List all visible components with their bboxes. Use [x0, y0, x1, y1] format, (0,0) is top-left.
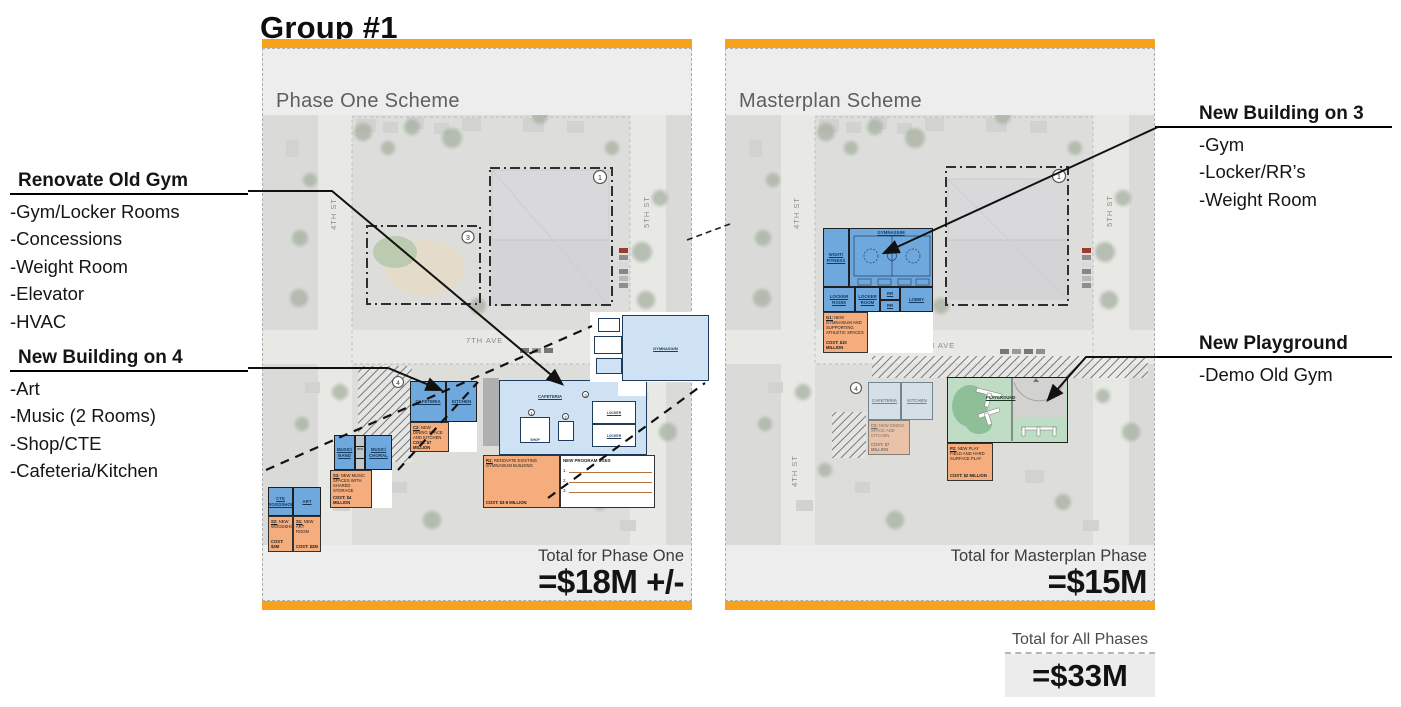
annotation-item: -Weight Room	[10, 253, 248, 280]
note-s2-cost: COST: $2M	[271, 539, 290, 549]
annotation-heading: New Playground	[1155, 333, 1392, 358]
note-r1-text: R1: RENOVATE EXISTING GYMNASIUM BUILDING	[486, 458, 557, 468]
street-label-5th: 5TH ST	[1105, 195, 1114, 227]
phase-one-scheme-label: Phase One Scheme	[276, 90, 460, 113]
playground-label: PLAYGROUND	[986, 395, 1015, 400]
block-cafeteria-faded: CAFETERIA	[868, 382, 901, 420]
annotation-item: -Shop/CTE	[10, 430, 248, 457]
annotation-item: -HVAC	[10, 308, 248, 335]
masterplan-scheme-label: Masterplan Scheme	[739, 90, 922, 113]
note-s3-cost: COST: $4 MILLION	[333, 495, 369, 505]
annotation-heading: New Building on 3	[1155, 103, 1392, 128]
note-s1-text: S1: NEW ART ROOM	[296, 519, 318, 534]
r1-cafeteria-label: CAFETERIA	[538, 394, 562, 399]
note-s2-text: S2: NEW WOODSHOP	[271, 519, 290, 529]
note-p2-text: P2: NEW PLAY FIELD AND HARD SURFACE PLAY	[950, 446, 990, 461]
r1-locker-room-2: LOCKER	[592, 424, 636, 447]
annotation-heading: New Building on 4	[10, 347, 248, 372]
gym-popup-label: GYMNASIUM	[653, 346, 678, 351]
annotation-item: -Demo Old Gym	[1199, 361, 1392, 388]
block-kitchen: KITCHEN	[446, 381, 477, 422]
r1-locker-room-1: LOCKER	[592, 401, 636, 424]
note-p2-cost: COST: $2 MILLION	[950, 473, 990, 478]
r1-floor-plan: CAFETERIA SHOP LOCKER LOCKER 1 2 3	[483, 378, 645, 455]
r1-small-room	[558, 421, 574, 441]
gym-popup-main-room: GYMNASIUM	[622, 315, 709, 381]
gym-popup-room-a	[598, 318, 620, 332]
site-3-marker: 3	[466, 235, 470, 242]
note-c2: C2: NEW DINING SPACE AND KITCHEN COST: $…	[410, 422, 449, 452]
site-1-marker: 1	[598, 173, 602, 182]
r1-wall-band	[483, 378, 499, 446]
panel-connector-dashes	[687, 224, 730, 240]
note-s3: S3: NEW MUSIC SPACES WITH SHARED STORAGE…	[330, 470, 372, 508]
playground-plan: PLAYGROUND	[947, 377, 1068, 443]
site-1-marker: 1	[1057, 172, 1061, 181]
phase-one-bottom-bar	[262, 601, 692, 610]
construction-hatch-strip	[872, 356, 1148, 378]
block-music-band: MUSIC/ BAND	[334, 435, 355, 470]
note-r1: R1: RENOVATE EXISTING GYMNASIUM BUILDING…	[483, 455, 560, 508]
gym-popup-plan: GYMNASIUM	[590, 312, 710, 382]
annotation-item: -Art	[10, 375, 248, 402]
note-g1-text: G1: NEW GYMNASIUM AND SUPPORTING ATHLETI…	[826, 315, 865, 335]
note-r1-cost: COST: $3-8 MILLION	[486, 500, 557, 505]
annotation-new-building-on-4: New Building on 4 -Art -Music (2 Rooms) …	[10, 347, 248, 485]
block-locker-room-1: LOCKER ROOM	[823, 287, 855, 312]
block-weight-fitness: WGHT/ FITNESS	[823, 228, 849, 287]
annotation-item: -Cafeteria/Kitchen	[10, 457, 248, 484]
masterplan-bottom-bar	[725, 601, 1155, 610]
use-line-3: 3.	[563, 488, 567, 493]
block-art: ART	[293, 487, 321, 516]
block-cte-woodshop: CTE WOODSHOP	[268, 487, 293, 516]
street-label-5th: 5TH ST	[642, 196, 651, 228]
masterplan-total-value: =$15M	[843, 563, 1147, 601]
block-gymnasium: GYMNASIUM	[849, 228, 933, 287]
r1-marker-1: 1	[528, 409, 535, 416]
use-line-2: 2.	[563, 478, 567, 483]
r1-plan-body: CAFETERIA SHOP LOCKER LOCKER 1 2 3	[499, 380, 647, 455]
masterplan-aerial-map: 1 4 4TH ST 4TH ST 5TH ST 7TH AVE	[726, 115, 1154, 545]
note-c2-paper	[449, 422, 477, 452]
annotation-item: -Gym	[1199, 131, 1392, 158]
note-s2: S2: NEW WOODSHOP COST: $2M	[268, 516, 293, 552]
annotation-item: -Weight Room	[1199, 186, 1392, 213]
playground-graphics	[948, 378, 1066, 441]
phase-one-total-value: =$18M +/-	[380, 563, 684, 601]
note-s1: S1: NEW ART ROOM COST: $2M	[293, 516, 321, 552]
note-s1-cost: COST: $2M	[296, 544, 318, 549]
annotation-new-playground: New Playground -Demo Old Gym	[1155, 333, 1392, 388]
masterplan-top-bar	[725, 39, 1155, 48]
phase-one-top-bar	[262, 39, 692, 48]
block-cafeteria: CAFETERIA	[410, 381, 446, 422]
new-program-uses-box: NEW PROGRAM USES 1. 2. 3.	[560, 455, 655, 508]
new-program-uses-title: NEW PROGRAM USES	[563, 458, 611, 463]
block-rr-2: RR	[880, 300, 900, 312]
grand-total-label: Total for All Phases	[1005, 631, 1155, 649]
site-4-marker: 4	[854, 386, 858, 393]
note-g1: G1: NEW GYMNASIUM AND SUPPORTING ATHLETI…	[823, 312, 868, 353]
note-s3-text: S3: NEW MUSIC SPACES WITH SHARED STORAGE	[333, 473, 369, 493]
gym-popup-room-b	[594, 336, 622, 354]
annotation-item: -Music (2 Rooms)	[10, 402, 248, 429]
annotation-item: -Gym/Locker Rooms	[10, 198, 248, 225]
block-lobby: LOBBY	[900, 287, 933, 312]
block-storage-stack: STO	[355, 435, 365, 470]
annotation-item: -Locker/RR’s	[1199, 158, 1392, 185]
r1-marker-2: 2	[562, 413, 569, 420]
r1-marker-3: 3	[582, 391, 589, 398]
note-c2-text: C2: NEW DINING SPACE AND KITCHEN	[413, 425, 446, 440]
r1-plan-notch	[618, 381, 646, 396]
note-g1-cost: COST: $10 MILLION	[826, 340, 865, 350]
slide: Group #1 Phase One Scheme	[0, 0, 1401, 707]
street-label-7th-ave: 7TH AVE	[466, 336, 503, 345]
annotation-item: -Concessions	[10, 225, 248, 252]
block-storage-label: STO	[356, 447, 364, 458]
note-c2-cost: COST: $7 MILLION	[413, 440, 446, 450]
basketball-courts	[850, 229, 933, 287]
note-s3-paper	[372, 470, 392, 508]
street-label-4th-south: 4TH ST	[790, 455, 799, 487]
block-locker-room-2: LOCKER ROOM	[855, 287, 880, 312]
street-label-4th: 4TH ST	[329, 198, 338, 230]
annotation-renovate-old-gym: Renovate Old Gym -Gym/Locker Rooms -Conc…	[10, 170, 248, 335]
r1-shop-room: SHOP	[520, 417, 550, 443]
grand-total-value: =$33M	[1005, 654, 1155, 697]
block-kitchen-faded: KITCHEN	[901, 382, 933, 420]
site-4-marker: 4	[396, 380, 400, 387]
block-music-choral: MUSIC/ CHORAL	[365, 435, 392, 470]
note-g1-paper	[868, 312, 933, 353]
annotation-heading: Renovate Old Gym	[10, 170, 248, 195]
block-rr-1: RR	[880, 287, 900, 300]
annotation-new-building-on-3: New Building on 3 -Gym -Locker/RR’s -Wei…	[1155, 103, 1392, 213]
note-c2-faded: C2: NEW DINING SPACE AND KITCHEN COST: $…	[868, 420, 910, 455]
use-line-1: 1.	[563, 468, 567, 473]
annotation-item: -Elevator	[10, 280, 248, 307]
street-label-4th: 4TH ST	[792, 197, 801, 229]
construction-hatch-block	[832, 412, 866, 458]
gym-popup-room-c	[596, 358, 622, 374]
note-p2: P2: NEW PLAY FIELD AND HARD SURFACE PLAY…	[947, 443, 993, 481]
